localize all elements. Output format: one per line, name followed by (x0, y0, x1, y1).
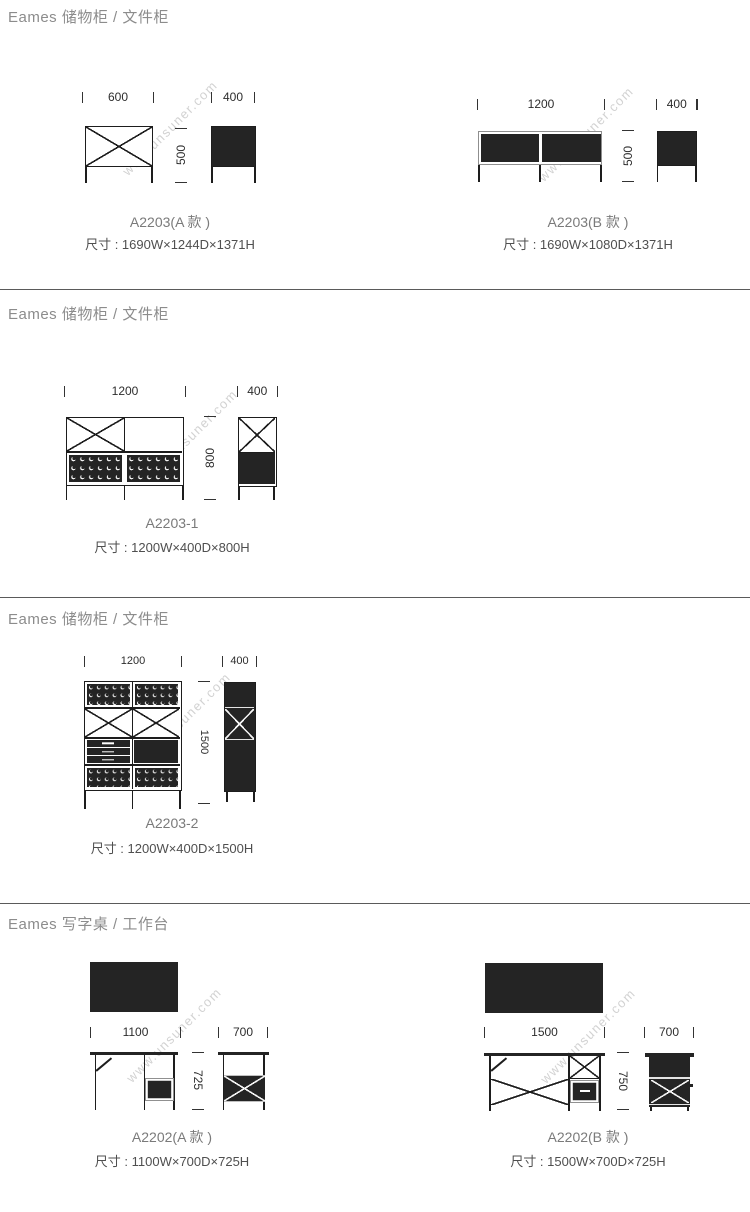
side-view (657, 131, 697, 167)
knob (690, 1084, 693, 1087)
dim-tick (198, 681, 210, 682)
x-brace (491, 1079, 569, 1106)
x-brace (133, 709, 180, 738)
drawer (87, 748, 131, 755)
leg (539, 165, 541, 182)
height-dimension: 750 (616, 1070, 630, 1090)
pedestal-box (145, 1078, 174, 1101)
dim-value: 1200 (85, 655, 180, 668)
door-panel (134, 740, 178, 763)
dim-value: 1100 (91, 1026, 179, 1039)
spec-label: 尺寸 : 1200W×400D×1500H (62, 838, 282, 857)
leg (179, 791, 181, 810)
leg (124, 486, 126, 500)
dim-tick (277, 386, 278, 397)
perforated-panel (69, 455, 122, 482)
divider (124, 418, 125, 452)
leg (95, 1055, 97, 1110)
divider (85, 764, 180, 765)
section-title: Eames 储物柜 / 文件柜 (8, 608, 169, 629)
spec-label: 尺寸 : 1690W×1080D×1371H (478, 234, 698, 253)
dim-tick (622, 130, 634, 131)
dim-tick (604, 99, 605, 110)
separator (0, 903, 750, 904)
spec-label: 尺寸 : 1690W×1244D×1371H (60, 234, 280, 253)
side-view (238, 417, 278, 487)
dim-tick (696, 99, 697, 110)
height-dimension: 500 (174, 145, 188, 165)
depth-dimension: 400 (222, 655, 257, 668)
dim-tick (622, 181, 634, 182)
leg (85, 167, 87, 184)
leg (254, 167, 256, 184)
depth-dimension: 400 (237, 385, 279, 398)
spec-label: 尺寸 : 1500W×700D×725H (478, 1151, 698, 1170)
dim-value: 1200 (65, 385, 184, 398)
drawer-handle (102, 743, 114, 744)
spec-label: 尺寸 : 1200W×400D×800H (62, 537, 282, 556)
door-panel (481, 134, 540, 162)
dim-value: 600 (83, 91, 152, 104)
height-dimension: 800 (203, 447, 217, 467)
spec-sheet: www.unsuner.com www.unsuner.com www.unsu… (0, 0, 750, 1212)
door-panel (239, 453, 276, 485)
model-label: A2203(A 款 ) (60, 212, 280, 232)
section-title: Eames 写字桌 / 工作台 (8, 913, 169, 934)
width-dimension: 1200 (84, 655, 182, 668)
leg (650, 1107, 652, 1111)
leg (211, 167, 213, 184)
dim-tick (693, 1027, 694, 1038)
diagonal-brace (96, 1057, 112, 1071)
model-label: A2202(B 款 ) (478, 1127, 698, 1147)
dim-tick (267, 1027, 268, 1038)
divider (225, 739, 254, 740)
dim-tick (604, 1027, 605, 1038)
leg (84, 791, 86, 810)
leg (657, 166, 659, 182)
height-dimension: 500 (621, 145, 635, 165)
dim-value: 400 (657, 98, 696, 111)
dim-value: 700 (219, 1026, 266, 1039)
section-title: Eames 储物柜 / 文件柜 (8, 303, 169, 324)
depth-dimension: 700 (644, 1026, 694, 1039)
desk-top-side (218, 1052, 269, 1056)
top-view (485, 963, 603, 1013)
leg (253, 792, 255, 802)
model-label: A2202(A 款 ) (62, 1127, 282, 1147)
x-brace (86, 127, 152, 166)
separator (0, 289, 750, 290)
front-view (84, 681, 182, 791)
side-view (224, 682, 256, 792)
model-label: A2203-1 (62, 515, 282, 531)
diagonal-brace (490, 1057, 506, 1071)
leg (151, 167, 153, 184)
depth-dimension: 400 (211, 91, 255, 104)
leg (600, 165, 602, 182)
drawer-handle (102, 759, 114, 760)
dim-value: 1500 (485, 1026, 603, 1039)
dim-tick (204, 416, 216, 417)
model-label: A2203-2 (62, 815, 282, 831)
x-brace (225, 709, 254, 739)
width-dimension: 1200 (64, 385, 186, 398)
dim-tick (204, 499, 216, 500)
dim-value: 400 (212, 91, 253, 104)
width-dimension: 1500 (484, 1026, 605, 1039)
dim-tick (256, 656, 257, 667)
dim-tick (617, 1052, 629, 1053)
x-brace (239, 418, 276, 452)
section-title: Eames 储物柜 / 文件柜 (8, 6, 169, 27)
drawer (87, 756, 131, 763)
dim-value: 400 (223, 655, 255, 668)
dim-tick (192, 1052, 204, 1053)
width-dimension: 1100 (90, 1026, 181, 1039)
front-view (66, 417, 185, 487)
leg (132, 791, 134, 810)
leg (66, 486, 68, 500)
drawer (87, 740, 131, 747)
perforated-panel (135, 768, 178, 787)
dim-tick (175, 182, 187, 183)
x-brace (651, 1080, 689, 1104)
x-brace (85, 709, 132, 738)
perforated-panel (127, 455, 180, 482)
height-dimension: 1500 (198, 729, 210, 753)
separator (0, 597, 750, 598)
dim-tick (153, 92, 154, 103)
dim-value: 700 (645, 1026, 692, 1039)
spec-label: 尺寸 : 1100W×700D×725H (62, 1151, 282, 1170)
leg (182, 486, 184, 500)
drawer-handle (580, 1090, 590, 1092)
top-view (90, 962, 178, 1012)
dim-tick (254, 92, 255, 103)
perforated-panel (135, 684, 178, 706)
dim-tick (192, 1109, 204, 1110)
front-view (85, 126, 153, 167)
side-body (649, 1057, 690, 1107)
side-view (211, 126, 256, 167)
leg (599, 1056, 601, 1111)
dim-tick (181, 656, 182, 667)
perforated-panel (87, 768, 130, 787)
front-view (478, 131, 603, 165)
x-brace (67, 418, 124, 452)
dim-tick (185, 386, 186, 397)
height-dimension: 725 (191, 1070, 205, 1090)
leg (273, 487, 275, 501)
x-brace (224, 1076, 265, 1101)
door-panel (542, 134, 601, 162)
width-dimension: 1200 (477, 98, 605, 111)
divider (649, 1104, 690, 1105)
dim-tick (198, 803, 210, 804)
drawer (570, 1080, 599, 1103)
leg (226, 792, 228, 802)
dim-tick (175, 128, 187, 129)
divider (649, 1077, 690, 1079)
depth-dimension: 700 (218, 1026, 268, 1039)
depth-dimension: 400 (656, 98, 698, 111)
dim-tick (180, 1027, 181, 1038)
divider (85, 737, 180, 738)
drawer-handle (102, 751, 114, 752)
x-brace (570, 1056, 600, 1078)
dim-value: 400 (238, 385, 277, 398)
desk-top (90, 1052, 178, 1056)
leg (687, 1107, 689, 1111)
leg (478, 165, 480, 182)
leg (238, 487, 240, 501)
divider (67, 451, 183, 452)
perforated-panel (87, 684, 130, 706)
dim-value: 1200 (478, 98, 603, 111)
model-label: A2203(B 款 ) (478, 212, 698, 232)
side-x-panel (224, 1075, 265, 1102)
leg (695, 166, 697, 182)
width-dimension: 600 (82, 91, 154, 104)
dim-tick (617, 1109, 629, 1110)
